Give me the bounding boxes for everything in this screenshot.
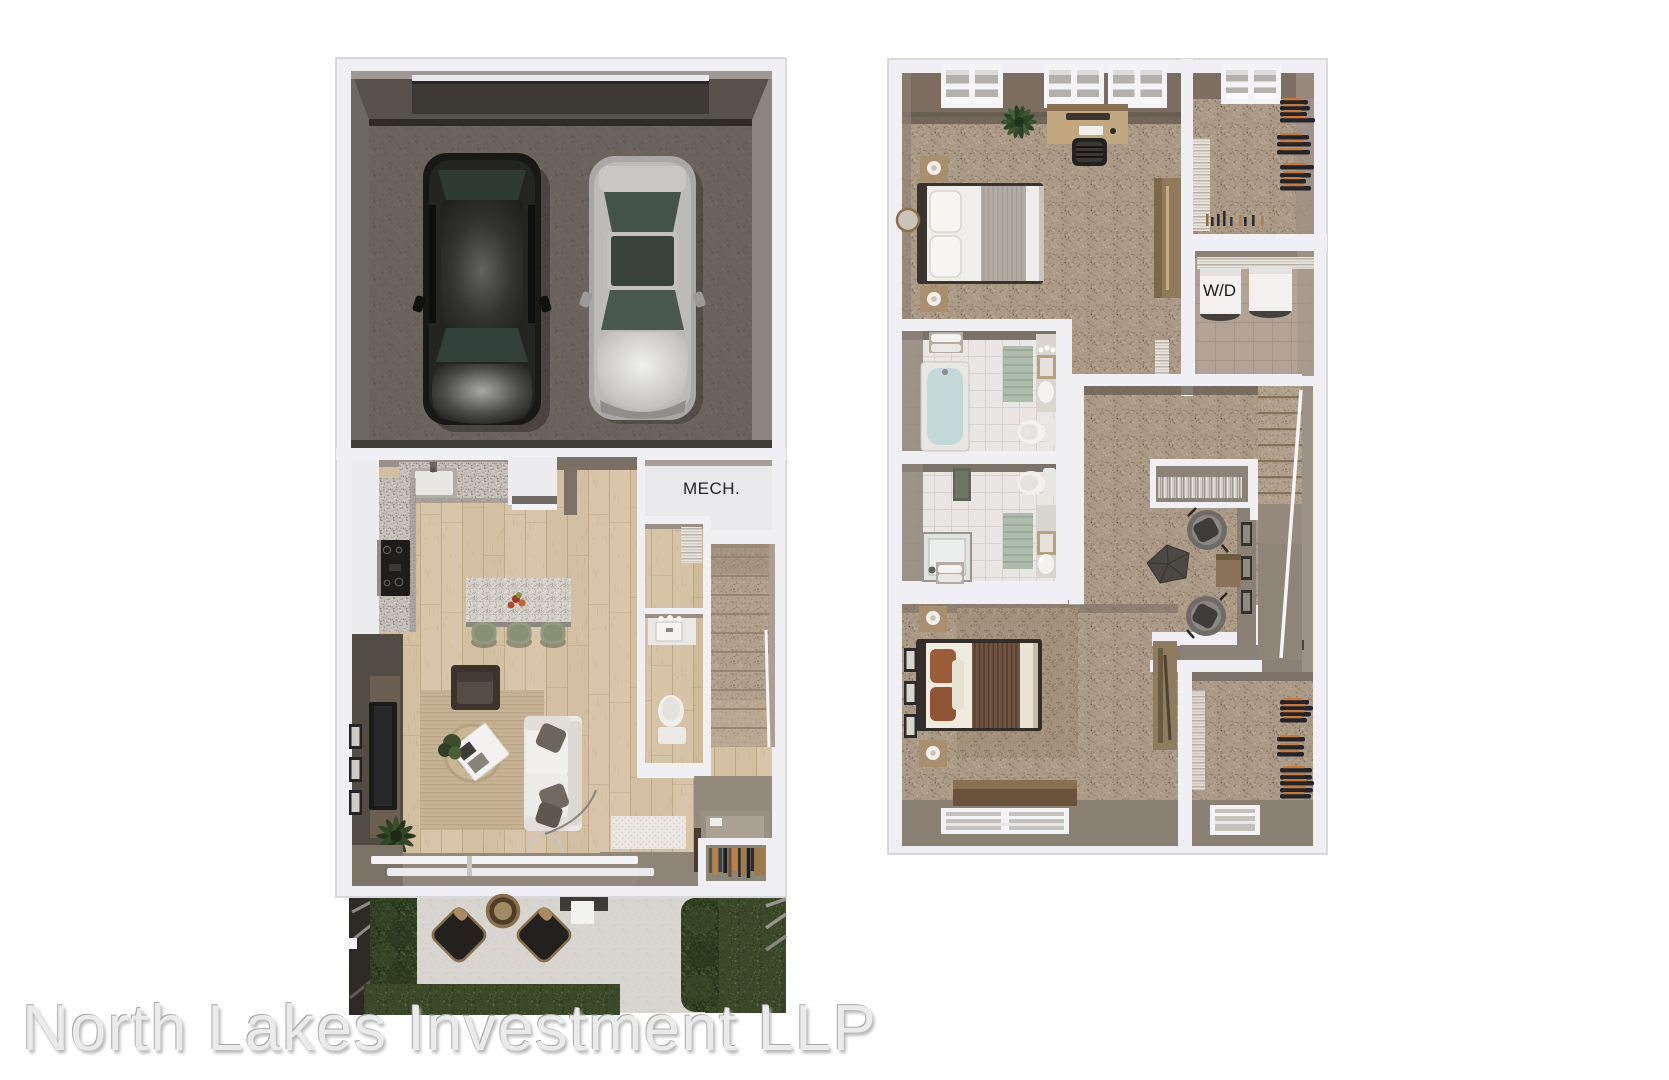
svg-text:W/D: W/D — [1203, 281, 1236, 300]
svg-text:MECH.: MECH. — [683, 479, 740, 498]
